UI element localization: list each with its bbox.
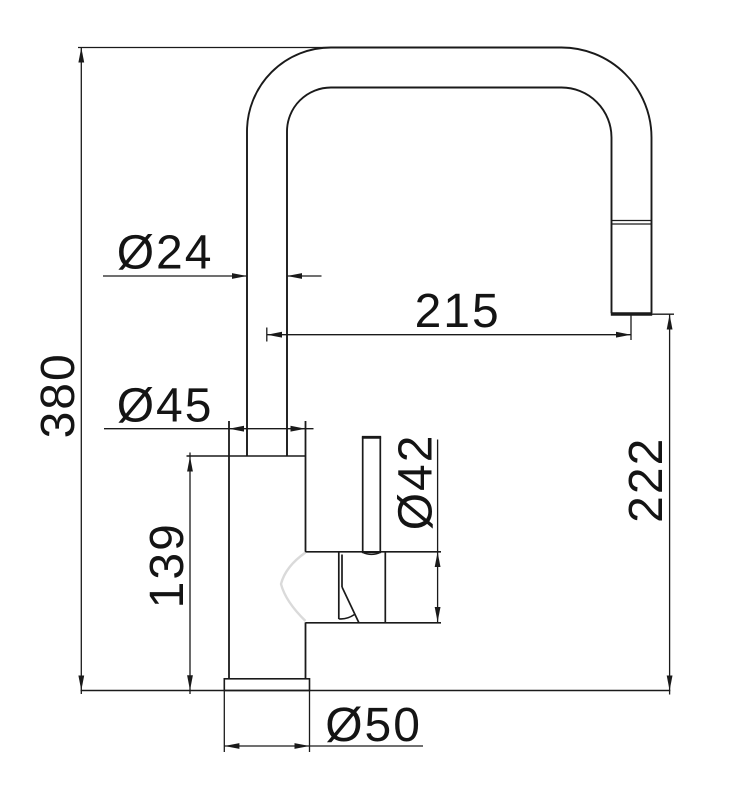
svg-text:Ø50: Ø50	[325, 699, 422, 752]
svg-text:139: 139	[141, 522, 194, 608]
svg-text:Ø24: Ø24	[117, 227, 214, 280]
svg-text:380: 380	[32, 352, 85, 438]
svg-text:Ø42: Ø42	[390, 434, 443, 531]
svg-text:Ø45: Ø45	[117, 380, 214, 433]
svg-text:222: 222	[620, 437, 673, 523]
svg-text:215: 215	[415, 285, 501, 338]
